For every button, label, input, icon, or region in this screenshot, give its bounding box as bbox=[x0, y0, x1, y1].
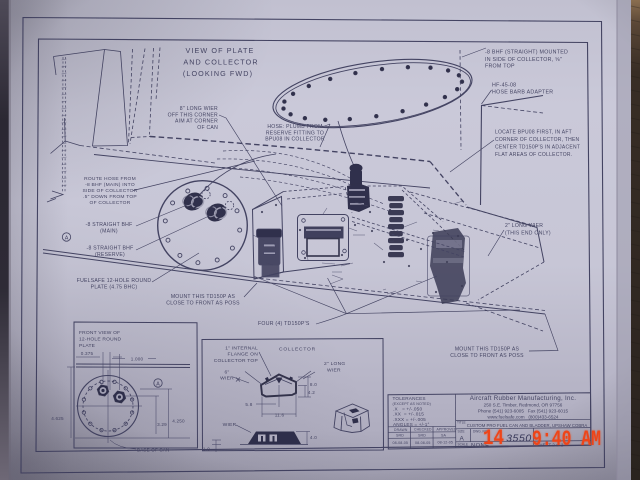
svg-text:FLANGE ON: FLANGE ON bbox=[227, 352, 258, 358]
svg-text:5.8: 5.8 bbox=[245, 402, 252, 407]
svg-text:SA: SA bbox=[441, 433, 447, 437]
svg-text:FROM TOP: FROM TOP bbox=[485, 64, 515, 70]
svg-text:HOSE: PLUMB FROM: HOSE: PLUMB FROM bbox=[267, 124, 322, 130]
svg-text:SIZE: SIZE bbox=[458, 430, 465, 434]
svg-text:(MAIN): (MAIN) bbox=[100, 229, 118, 235]
svg-text:FLAT AREAS OF COLLECTOR.: FLAT AREAS OF COLLECTOR. bbox=[495, 152, 572, 158]
svg-text:08-12-05: 08-12-05 bbox=[438, 441, 454, 445]
svg-text:0.375: 0.375 bbox=[81, 351, 94, 356]
svg-text:4.2: 4.2 bbox=[308, 390, 315, 395]
svg-text:8" LONG WIER: 8" LONG WIER bbox=[180, 106, 218, 112]
svg-text:VIEW OF PLATE: VIEW OF PLATE bbox=[186, 46, 255, 55]
svg-text:DRAWN: DRAWN bbox=[394, 428, 408, 432]
svg-text:MOUNT THIS TD150P AS: MOUNT THIS TD150P AS bbox=[171, 294, 236, 300]
svg-text:LOCATE BPU08 FIRST, IN AFT: LOCATE BPU08 FIRST, IN AFT bbox=[495, 130, 572, 136]
svg-text:OFF THIS CORNER: OFF THIS CORNER bbox=[168, 112, 218, 118]
svg-text:CLOSE TO FRONT AS POSS: CLOSE TO FRONT AS POSS bbox=[166, 301, 240, 307]
svg-text:(RESERVE): (RESERVE) bbox=[95, 252, 125, 258]
svg-text:MOUNT THIS TD150P AS: MOUNT THIS TD150P AS bbox=[455, 347, 520, 353]
svg-text:PLATE: PLATE bbox=[79, 343, 96, 349]
svg-text:(LOOKING FWD): (LOOKING FWD) bbox=[183, 69, 253, 78]
svg-text:08-08-05: 08-08-05 bbox=[393, 441, 409, 445]
svg-text:PLATE (4.75 BHC): PLATE (4.75 BHC) bbox=[91, 285, 138, 291]
svg-text:-8 BHF (STRAIGHT) MOUNTED: -8 BHF (STRAIGHT) MOUNTED bbox=[485, 50, 568, 56]
svg-text:A: A bbox=[65, 235, 69, 241]
svg-text:4.0: 4.0 bbox=[310, 435, 317, 440]
svg-text:HF-45-08: HF-45-08 bbox=[492, 83, 516, 89]
svg-text:WIER: WIER bbox=[327, 368, 341, 374]
svg-text:OF CAN: OF CAN bbox=[197, 125, 218, 131]
svg-text:ROUTE HOSE FROM: ROUTE HOSE FROM bbox=[84, 176, 136, 182]
svg-text:SIDE OF COLLECTOR: SIDE OF COLLECTOR bbox=[83, 188, 138, 194]
svg-text:CENTER TD150P'S IN ADJACENT: CENTER TD150P'S IN ADJACENT bbox=[495, 145, 580, 151]
svg-text:14: 14 bbox=[483, 425, 504, 451]
svg-text:Aircraft Rubber Manufacturin: Aircraft Rubber Manufacturing, Inc. bbox=[470, 395, 576, 402]
svg-text:BPU08 IN COLLECTOR: BPU08 IN COLLECTOR bbox=[265, 137, 325, 143]
svg-text:www.fuelsafe.com (800)433-65: www.fuelsafe.com (800)433-6524 bbox=[488, 415, 559, 420]
svg-text:4.250: 4.250 bbox=[172, 419, 185, 424]
svg-text:SRD: SRD bbox=[418, 434, 426, 438]
svg-text:1.000: 1.000 bbox=[131, 357, 144, 362]
svg-text:2" LONG: 2" LONG bbox=[324, 361, 345, 367]
svg-text:.5" DOWN FROM TOP: .5" DOWN FROM TOP bbox=[83, 194, 137, 200]
svg-text:250 S.E. Timber, Redmond, OR 9: 250 S.E. Timber, Redmond, OR 97756 bbox=[484, 403, 563, 408]
svg-text:AND COLLECTOR: AND COLLECTOR bbox=[183, 58, 258, 67]
svg-text:8.0: 8.0 bbox=[310, 382, 317, 387]
svg-text:12-HOLE ROUND: 12-HOLE ROUND bbox=[79, 337, 122, 343]
svg-text:BASE OF CAN: BASE OF CAN bbox=[137, 448, 169, 453]
svg-text:-8 STRAIGHT BHF: -8 STRAIGHT BHF bbox=[87, 246, 134, 252]
svg-text:COLLECTOR TOP: COLLECTOR TOP bbox=[214, 358, 258, 364]
svg-text:RESERVE FITTING TO: RESERVE FITTING TO bbox=[266, 130, 324, 136]
svg-text:(THIS END ONLY): (THIS END ONLY) bbox=[505, 231, 551, 237]
svg-text:HOSE BARB ADAPTER: HOSE BARB ADAPTER bbox=[492, 90, 553, 96]
svg-text:FOUR (4) TD150P'S: FOUR (4) TD150P'S bbox=[258, 321, 310, 327]
svg-text:IN SIDE OF COLLECTOR, ⅝": IN SIDE OF COLLECTOR, ⅝" bbox=[485, 57, 562, 63]
svg-text:TOLERANCES: TOLERANCES bbox=[393, 396, 426, 401]
svg-text:08-08-05: 08-08-05 bbox=[415, 441, 431, 445]
svg-text:AIM AT CORNER: AIM AT CORNER bbox=[175, 119, 218, 125]
svg-text:APPROVED: APPROVED bbox=[437, 428, 457, 432]
svg-text:3550: 3550 bbox=[506, 433, 532, 445]
svg-text:SRD: SRD bbox=[396, 434, 404, 438]
svg-text:3.29: 3.29 bbox=[157, 422, 167, 427]
svg-text:WIER: WIER bbox=[220, 376, 234, 382]
svg-text:1.0: 1.0 bbox=[203, 447, 210, 452]
svg-text:A: A bbox=[156, 381, 160, 387]
svg-text:A: A bbox=[460, 436, 465, 443]
svg-text:FRONT VIEW OF: FRONT VIEW OF bbox=[79, 330, 120, 336]
svg-text:ANGLES = +/-1°: ANGLES = +/-1° bbox=[393, 422, 430, 427]
svg-text:4.625: 4.625 bbox=[51, 416, 64, 421]
svg-text:TITLE: TITLE bbox=[457, 421, 466, 425]
svg-text:COLLECTOR: COLLECTOR bbox=[279, 347, 316, 353]
svg-text:2" LONG WIER: 2" LONG WIER bbox=[505, 223, 543, 229]
svg-text:CLOSE TO FRONT AS POSS: CLOSE TO FRONT AS POSS bbox=[450, 353, 524, 359]
svg-text:CORNER OF COLLECTOR, THEN: CORNER OF COLLECTOR, THEN bbox=[495, 137, 580, 143]
svg-text:-8 STRAIGHT BHF: -8 STRAIGHT BHF bbox=[86, 222, 133, 228]
svg-text:(EXCEPT AS NOTED): (EXCEPT AS NOTED) bbox=[393, 402, 431, 406]
svg-text:1" INTERNAL: 1" INTERNAL bbox=[225, 346, 258, 352]
svg-text:WIER: WIER bbox=[223, 422, 237, 428]
svg-text:CHECKED: CHECKED bbox=[414, 428, 432, 432]
svg-text:Phone (541) 923-6005 Fax (54: Phone (541) 923-6005 Fax (541) 923-6015 bbox=[478, 409, 569, 414]
svg-text:6": 6" bbox=[225, 370, 230, 376]
svg-text:OF COLLECTOR: OF COLLECTOR bbox=[90, 200, 131, 206]
svg-text:SCALE: SCALE bbox=[458, 443, 468, 447]
svg-text:-8 BHF (MAIN) INTO: -8 BHF (MAIN) INTO bbox=[85, 182, 135, 188]
svg-text:11.6: 11.6 bbox=[275, 413, 285, 418]
svg-text:9:40 AM: 9:40 AM bbox=[532, 426, 601, 452]
svg-text:FUELSAFE 12-HOLE ROUND: FUELSAFE 12-HOLE ROUND bbox=[77, 278, 152, 284]
